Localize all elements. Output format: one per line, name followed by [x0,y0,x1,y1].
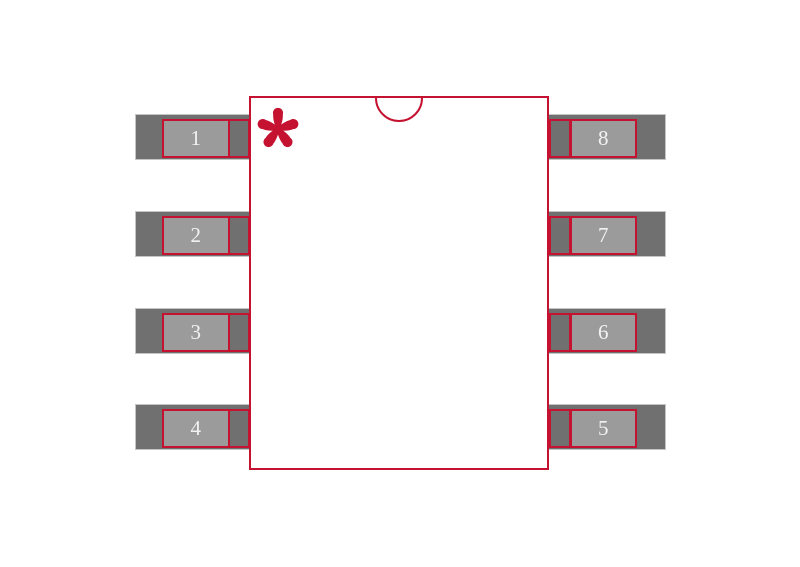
pin-5-pad: 5 [549,409,637,448]
pin-5-number: 5 [598,418,609,439]
pin-7-pad: 7 [549,216,637,255]
pin-4-number: 4 [191,418,202,439]
pin-1-pad: 1 [162,119,250,158]
pin-8-pad-under-body [551,121,569,156]
pin-4-pad: 4 [162,409,250,448]
pin-2-number: 2 [191,225,202,246]
pin-4-pad-copper: 4 [164,411,228,446]
pin-6-pad-copper: 6 [572,315,636,350]
pin-6-pad-under-body [551,315,569,350]
component-body-outline [249,96,549,470]
pin-2-pad: 2 [162,216,250,255]
pin-7-number: 7 [598,225,609,246]
pin-5-pad-under-body [551,411,569,446]
pin-6-pad: 6 [549,313,637,352]
pin-2-pad-under-body [230,218,248,253]
pin-5-pad-copper: 5 [572,411,636,446]
pin-3-pad: 3 [162,313,250,352]
pin-7-pad-copper: 7 [572,218,636,253]
pin1-marker-asterisk-icon [255,106,301,152]
footprint-diagram: 1 8 2 7 [0,0,800,567]
pin-1-pad-copper: 1 [164,121,228,156]
pin-8-pad-copper: 8 [572,121,636,156]
pin-6-number: 6 [598,322,609,343]
pin-1-number: 1 [191,128,202,149]
pin-3-pad-copper: 3 [164,315,228,350]
pin-8-pad: 8 [549,119,637,158]
pin-4-pad-under-body [230,411,248,446]
index-notch-icon [374,97,424,124]
pin-8-number: 8 [598,128,609,149]
pin-3-number: 3 [191,322,202,343]
pin-3-pad-under-body [230,315,248,350]
pin-1-pad-under-body [230,121,248,156]
pin-7-pad-under-body [551,218,569,253]
pin-2-pad-copper: 2 [164,218,228,253]
